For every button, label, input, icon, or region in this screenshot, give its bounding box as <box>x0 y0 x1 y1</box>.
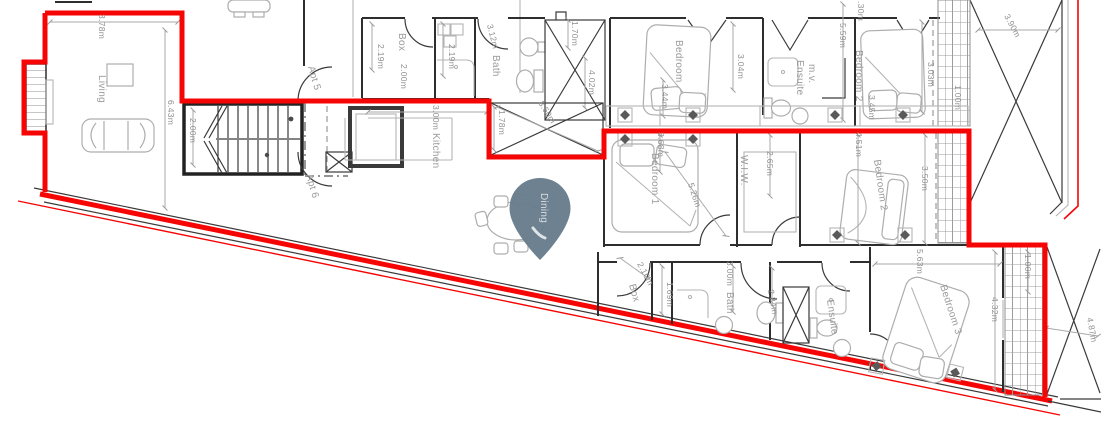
label-ensuite-mv-2: m.v. <box>806 64 817 83</box>
dim-site-top: 3.90m <box>1002 12 1023 39</box>
dim-balcony-top-h: 3.03m <box>926 62 936 87</box>
dim-balcony-b-w: 1.00m <box>1023 254 1033 279</box>
label-box-top: Box <box>396 33 407 51</box>
balcony-bottom <box>1003 247 1043 395</box>
dim-bath-top: 3.12m <box>485 23 501 50</box>
dim-void-w: 1.78m <box>497 110 507 135</box>
dim-stairs: 2.00m <box>188 118 198 143</box>
dim-ensuite-mv: 5.59m <box>838 23 848 48</box>
label-apt6: Apt 6 <box>303 173 320 200</box>
label-bedroom1: Bedroom 1 <box>649 153 660 205</box>
dim-wiw: 2.65m <box>765 151 775 176</box>
sink-icon-bath-top <box>520 38 545 56</box>
label-living: Living <box>96 75 107 103</box>
label-box-bottom: Box <box>626 283 642 303</box>
toilet-icon-bath-top <box>517 70 544 92</box>
armchair-icon <box>228 0 270 17</box>
dim-bath-b: 3.00m <box>725 261 735 286</box>
services-shaft <box>783 287 809 343</box>
pin-room-label: Dining <box>538 193 549 223</box>
dim-living-w: 3.78m <box>97 14 107 39</box>
dim-kitchen: 3.00m <box>431 105 441 130</box>
dim-balcony-top-w: 1.00m <box>953 85 963 110</box>
floorplan-canvas: Dining Living Kitchen Box Bath Bedroom E… <box>0 0 1101 441</box>
shower-icon-ensuite-mv <box>768 58 798 86</box>
dim-bedroom2-top: 3.45m <box>867 95 877 120</box>
sink-icon-ensuite-mv <box>792 108 808 124</box>
sofa-icon <box>82 119 154 152</box>
dim-bedroom-top: 3.04m <box>736 54 746 79</box>
dim-top-cut: .30m <box>856 1 866 21</box>
tv-unit-icon <box>107 64 133 86</box>
dim-void-h: 4.02m <box>587 70 597 95</box>
sink-icon-bath-bottom <box>716 317 733 334</box>
dim-bedroom2-w: 3.50m <box>920 166 930 191</box>
dim-box-b-w: 1.69m <box>665 282 675 307</box>
dim-bedroom2-l: 4.51m <box>854 132 864 157</box>
lift <box>350 108 402 166</box>
dim-site-right: 4.87m <box>1085 317 1099 343</box>
toilet-icon-ensuite-mv <box>764 98 791 118</box>
dim-util: 2.19m <box>447 44 457 69</box>
label-kitchen: Kitchen <box>430 133 441 168</box>
living-room <box>26 22 178 208</box>
stair-core <box>184 67 402 186</box>
bay-window <box>26 64 46 132</box>
label-bedroom2-top: Bedroom 2 <box>853 50 864 102</box>
dim-box-w: 2.00m <box>399 64 409 89</box>
label-bath-top: Bath <box>490 55 501 77</box>
label-ensuite-mv-1: Ensuite <box>794 60 805 96</box>
label-bedroom-top: Bedroom <box>673 40 684 83</box>
dim-bedroom3: 4.32m <box>990 297 1000 322</box>
dim-bed-top: 3.44m <box>660 84 670 109</box>
sink-icon-ensuite-bottom <box>834 340 851 357</box>
label-bath-bottom: Bath <box>724 292 735 314</box>
balcony-mid <box>938 133 968 243</box>
dim-living-h: 6.43m <box>166 100 176 125</box>
dim-bedroom1-w: 3.68m <box>656 132 666 157</box>
dim-void-top: 1.70m <box>570 21 580 46</box>
dim-corridor: 5.63m <box>915 249 925 274</box>
label-wiw: W.I.W. <box>738 155 749 186</box>
dim-box-d: 2.19m <box>376 44 386 69</box>
